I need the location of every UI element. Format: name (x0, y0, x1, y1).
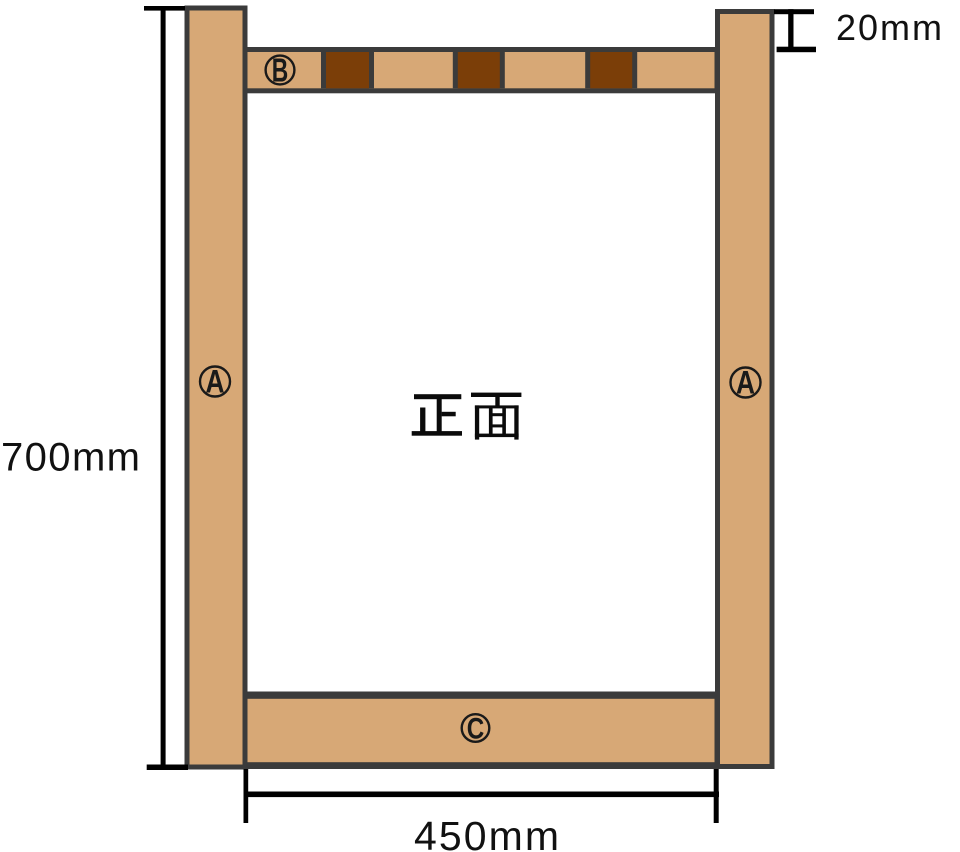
svg-text:A: A (736, 365, 755, 401)
svg-text:20mm: 20mm (836, 7, 942, 48)
svg-text:450mm: 450mm (414, 813, 559, 852)
svg-text:B: B (272, 51, 289, 88)
svg-text:A: A (206, 364, 225, 400)
svg-text:C: C (467, 712, 485, 745)
svg-text:700mm: 700mm (1, 436, 140, 480)
